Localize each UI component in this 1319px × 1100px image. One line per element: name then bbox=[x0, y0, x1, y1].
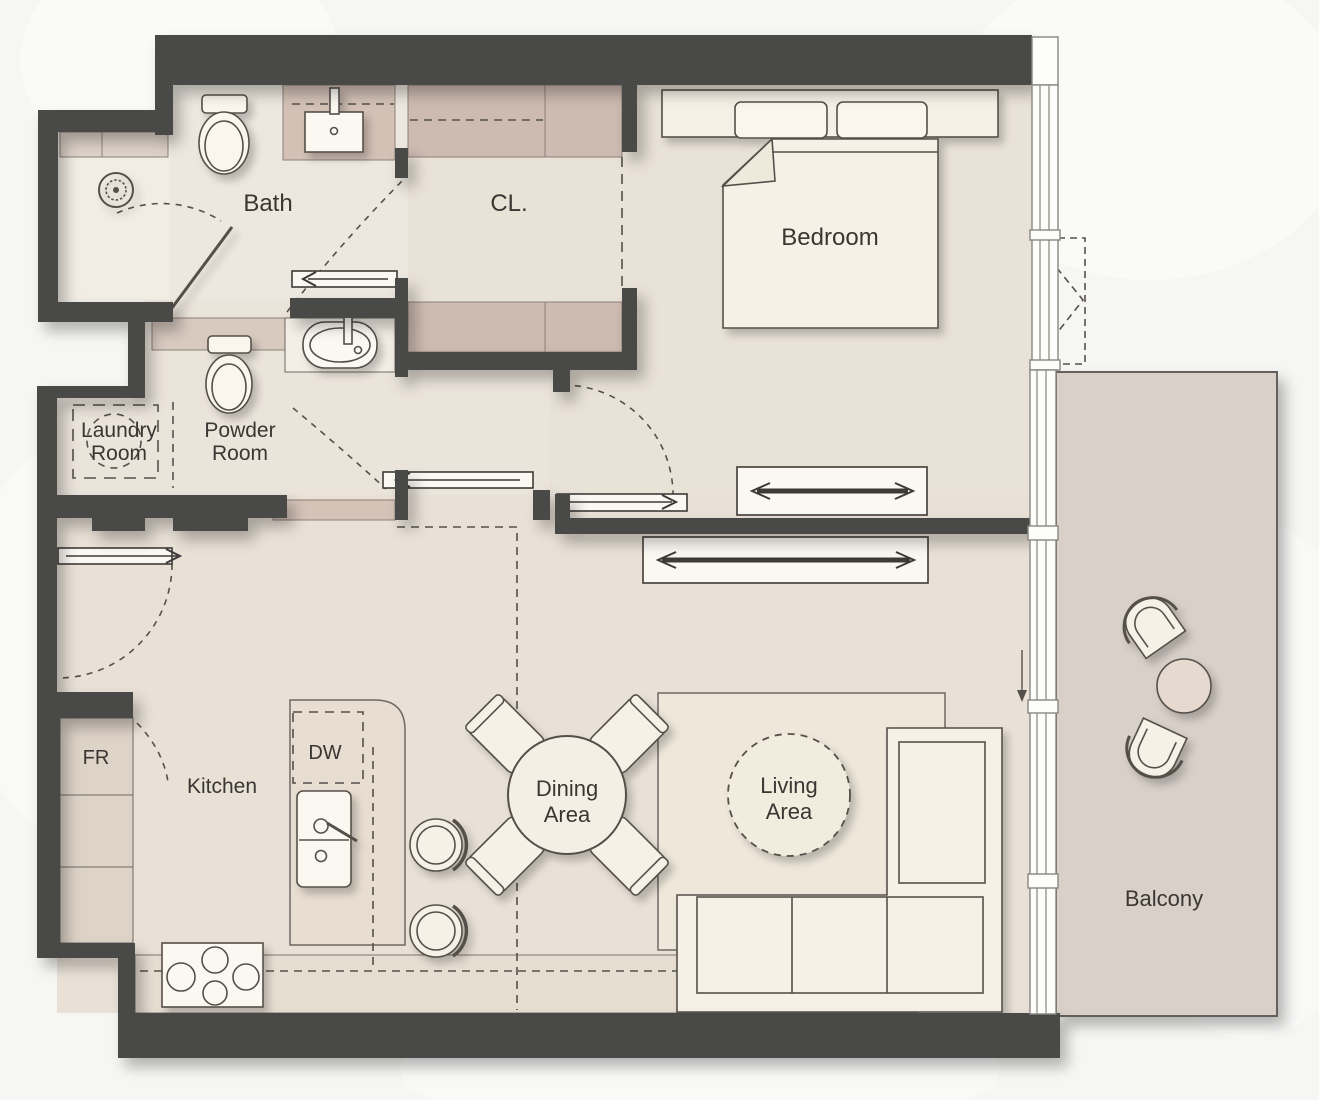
laundry-label-line1: Laundry bbox=[81, 419, 157, 442]
kitchen-sink bbox=[297, 791, 357, 887]
powder-label-line2: Room bbox=[212, 442, 268, 465]
entry-door bbox=[58, 548, 180, 564]
sliding-door-corridor bbox=[557, 494, 687, 511]
fridge-label: FR bbox=[83, 747, 110, 769]
wardrobe-bottom bbox=[408, 302, 622, 352]
bedroom-window bbox=[1030, 85, 1060, 370]
toilet-powder bbox=[206, 336, 252, 413]
dining-label-line1: Dining bbox=[536, 776, 598, 801]
shower-shelf bbox=[60, 132, 168, 157]
pillow bbox=[735, 102, 827, 138]
bedroom-label: Bedroom bbox=[781, 224, 878, 251]
powder-label-line1: Powder bbox=[204, 419, 275, 442]
living-label-line2: Area bbox=[766, 799, 813, 824]
balcony-table bbox=[1157, 659, 1211, 713]
toilet-bath bbox=[199, 95, 249, 174]
balcony-glass-wall bbox=[1028, 370, 1058, 1014]
dishwasher-label: DW bbox=[308, 742, 341, 764]
closet-label: CL. bbox=[490, 190, 527, 217]
kitchen-label: Kitchen bbox=[187, 775, 257, 798]
sliding-door-bath bbox=[292, 271, 397, 287]
floor-plan-svg: Bath CL. Bedroom Laundry Room Powder Roo… bbox=[0, 0, 1319, 1100]
sliding-panel-bedroom bbox=[737, 467, 927, 515]
laundry-label-line2: Room bbox=[91, 442, 147, 465]
window-return bbox=[1032, 37, 1058, 85]
balcony-label: Balcony bbox=[1125, 886, 1203, 911]
cooktop bbox=[162, 943, 263, 1007]
floor-plan: Bath CL. Bedroom Laundry Room Powder Roo… bbox=[0, 0, 1319, 1100]
dining-label-line2: Area bbox=[544, 802, 591, 827]
pillow bbox=[837, 102, 927, 138]
bath-label: Bath bbox=[243, 190, 292, 217]
headboard bbox=[662, 90, 998, 137]
hall-shelf bbox=[273, 500, 395, 520]
sliding-panel-living bbox=[643, 537, 928, 583]
wardrobe-top bbox=[408, 85, 622, 157]
living-label-line1: Living bbox=[760, 773, 817, 798]
